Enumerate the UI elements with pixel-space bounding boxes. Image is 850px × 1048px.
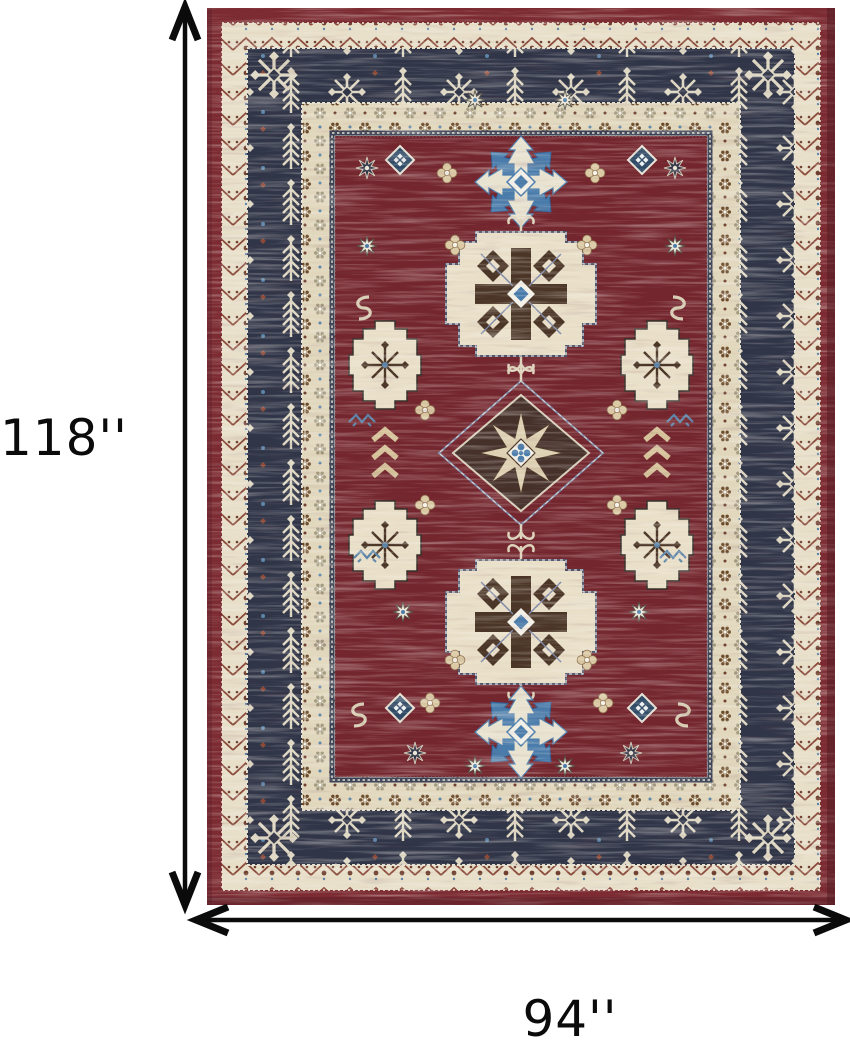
height-dimension-arrow-icon	[172, 7, 198, 905]
rug-image	[207, 8, 835, 905]
width-dimension-arrow-icon	[196, 907, 846, 933]
width-dimension-label: 94''	[505, 994, 635, 1044]
height-dimension-label: 118''	[0, 413, 116, 463]
rug-graphic	[207, 8, 835, 905]
rug-dimension-diagram: 118'' 94''	[0, 0, 850, 1043]
